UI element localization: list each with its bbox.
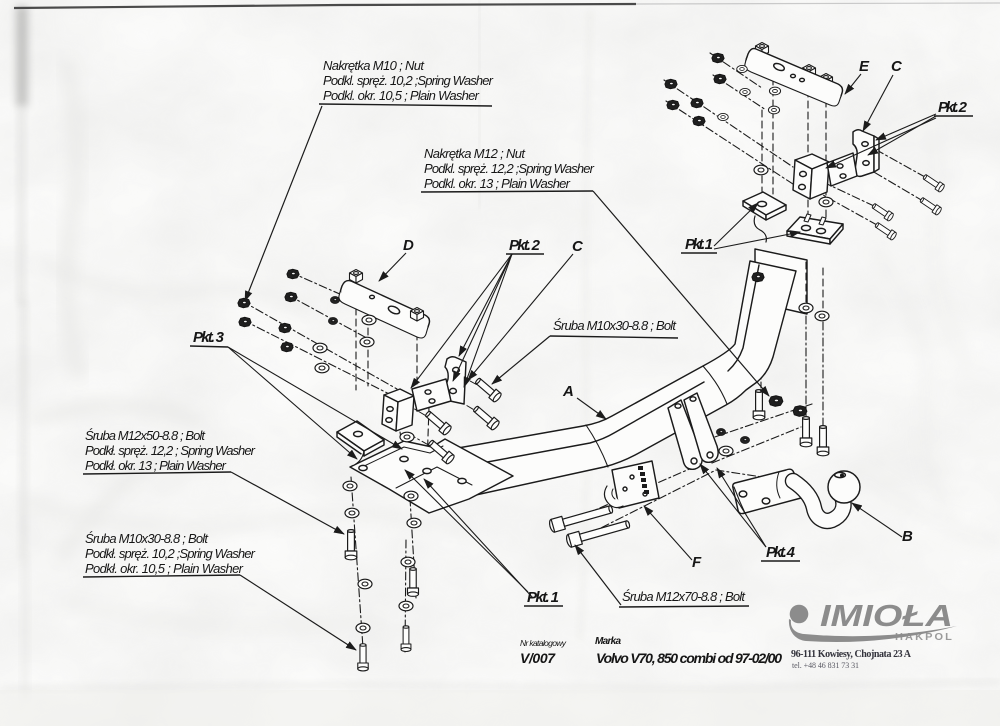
svg-text:E: E <box>859 58 870 75</box>
svg-text:Nakrętka M10 ; Nut: Nakrętka M10 ; Nut <box>323 58 425 73</box>
svg-text:Pkt. 3: Pkt. 3 <box>193 329 225 346</box>
svg-text:Pkt. 4: Pkt. 4 <box>766 544 796 561</box>
svg-text:V/007: V/007 <box>520 650 556 666</box>
svg-text:B: B <box>902 528 913 545</box>
svg-text:A: A <box>562 383 574 400</box>
svg-text:Podkł. spręż. 12,2 ; Spring Wa: Podkł. spręż. 12,2 ; Spring Washer <box>85 443 256 458</box>
svg-text:D: D <box>403 237 414 254</box>
svg-text:Pkt. 2: Pkt. 2 <box>509 237 541 254</box>
svg-text:Podkl. spręż. 12,2 ;Spring Was: Podkl. spręż. 12,2 ;Spring Washer <box>424 161 595 176</box>
svg-text:Nr katalogowy: Nr katalogowy <box>520 638 567 648</box>
svg-text:tel. +48 46 831 73 31: tel. +48 46 831 73 31 <box>792 661 859 670</box>
svg-text:Nakrętka M12 ; Nut: Nakrętka M12 ; Nut <box>424 146 526 161</box>
svg-text:C: C <box>572 238 584 255</box>
svg-text:Podkl. spręż. 10,2 ;Spring Was: Podkl. spręż. 10,2 ;Spring Washer <box>323 73 494 88</box>
svg-text:Podkł. okr. 13 ; Plain Washer: Podkł. okr. 13 ; Plain Washer <box>85 458 227 473</box>
svg-text:F: F <box>692 554 702 571</box>
svg-text:Pkt. 2: Pkt. 2 <box>938 99 968 116</box>
svg-text:Podkł. spręż. 10,2 ;Spring Was: Podkł. spręż. 10,2 ;Spring Washer <box>85 546 256 561</box>
svg-text:Podkł. okr. 10,5 ; Plain Wash: Podkł. okr. 10,5 ; Plain Washer <box>85 561 244 576</box>
svg-text:C: C <box>891 58 903 75</box>
svg-text:Śruba M10x30-8.8 ; Bolt: Śruba M10x30-8.8 ; Bolt <box>85 531 209 546</box>
svg-text:Marka: Marka <box>595 636 621 647</box>
svg-text:Podkl. okr. 13 ; Plain Washer: Podkl. okr. 13 ; Plain Washer <box>424 176 571 191</box>
svg-text:96-111 Kowiesy, Chojnata 23 A: 96-111 Kowiesy, Chojnata 23 A <box>791 649 912 660</box>
svg-text:Śruba M12x50-8.8 ; Bolt: Śruba M12x50-8.8 ; Bolt <box>85 428 206 443</box>
svg-text:Podkl. okr. 10,5 ; Plain Wash: Podkl. okr. 10,5 ; Plain Washer <box>323 88 480 103</box>
svg-text:Śruba M12x70-8.8 ; Bolt: Śruba M12x70-8.8 ; Bolt <box>622 589 746 604</box>
svg-text:IMIOŁA: IMIOŁA <box>820 598 953 633</box>
svg-text:Volvo V70, 850 combi od 97-: Volvo V70, 850 combi od 97-02/00 <box>596 650 782 666</box>
svg-text:Śruba M10x30-8.8 ; Bolt: Śruba M10x30-8.8 ; Bolt <box>553 318 677 333</box>
svg-text:Pkt. 1: Pkt. 1 <box>685 236 713 253</box>
